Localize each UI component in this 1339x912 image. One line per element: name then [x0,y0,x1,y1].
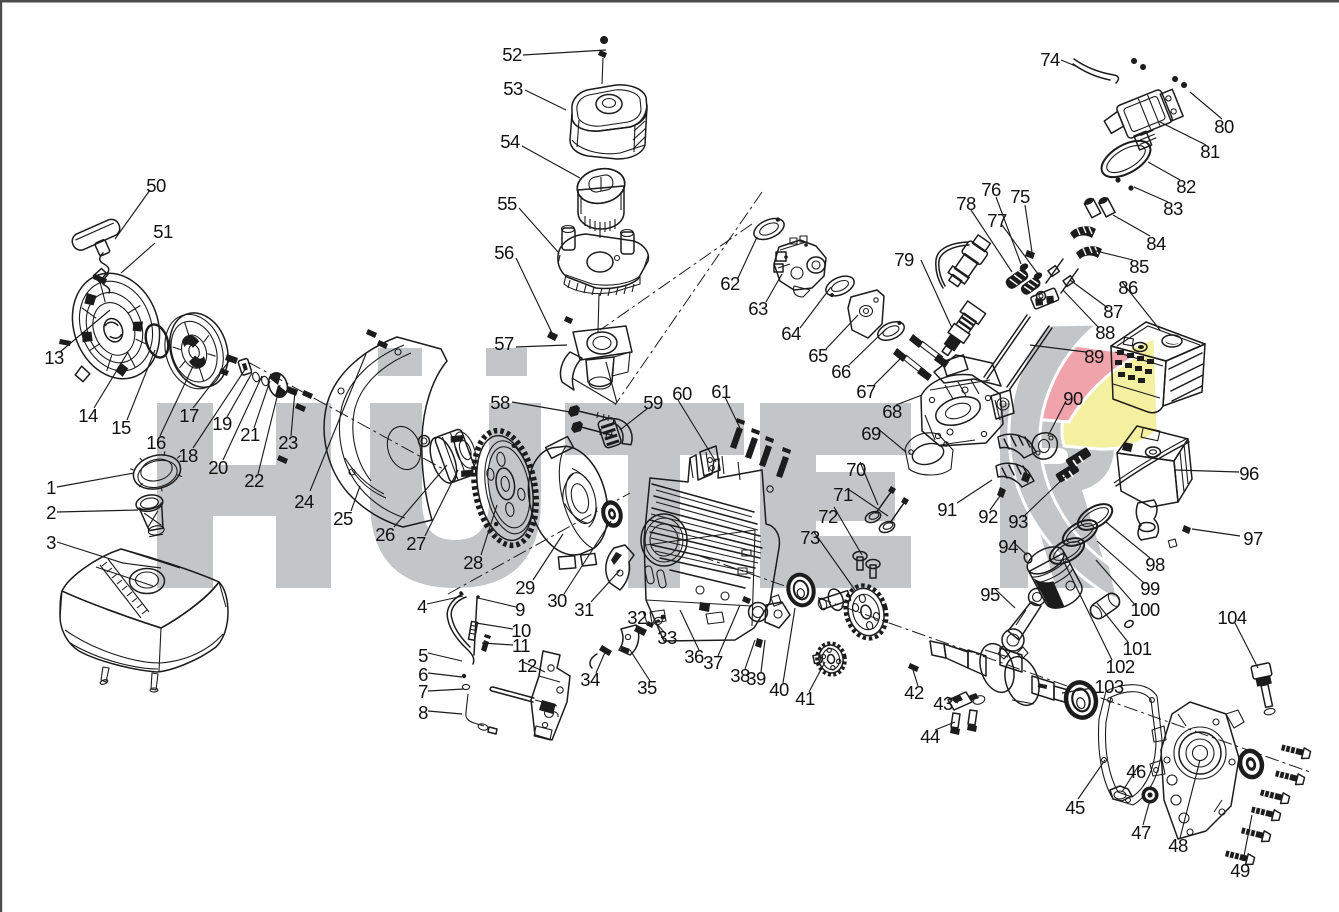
svg-text:12: 12 [517,655,537,676]
svg-text:74: 74 [1040,49,1060,70]
svg-text:88: 88 [1095,322,1115,343]
svg-text:16: 16 [146,432,166,453]
svg-text:100: 100 [1130,599,1159,620]
svg-text:95: 95 [980,584,1000,605]
svg-text:62: 62 [720,273,740,294]
svg-text:89: 89 [1084,346,1104,367]
svg-text:27: 27 [406,533,426,554]
svg-text:90: 90 [1063,388,1083,409]
svg-text:15: 15 [111,417,131,438]
svg-text:83: 83 [1163,198,1183,219]
svg-text:8: 8 [418,702,428,723]
svg-text:67: 67 [856,381,876,402]
svg-text:63: 63 [748,298,768,319]
svg-text:31: 31 [574,599,594,620]
svg-text:73: 73 [800,527,820,548]
svg-text:59: 59 [643,392,663,413]
svg-text:13: 13 [44,347,64,368]
svg-text:81: 81 [1200,141,1220,162]
svg-text:43: 43 [933,693,953,714]
svg-text:98: 98 [1145,554,1165,575]
svg-text:41: 41 [795,688,815,709]
svg-text:33: 33 [657,627,677,648]
svg-text:29: 29 [515,577,535,598]
svg-text:66: 66 [831,361,851,382]
svg-text:44: 44 [920,726,940,747]
svg-text:32: 32 [627,607,647,628]
svg-text:85: 85 [1129,256,1149,277]
svg-text:76: 76 [981,179,1001,200]
svg-text:84: 84 [1146,233,1166,254]
svg-text:51: 51 [153,221,173,242]
svg-text:2: 2 [46,502,56,523]
svg-text:24: 24 [294,491,314,512]
svg-text:1: 1 [46,477,56,498]
svg-text:60: 60 [672,383,692,404]
svg-text:3: 3 [46,532,56,553]
svg-text:75: 75 [1010,186,1030,207]
svg-text:87: 87 [1103,301,1123,322]
svg-text:102: 102 [1105,656,1134,677]
svg-text:7: 7 [418,681,428,702]
svg-text:56: 56 [494,242,514,263]
svg-text:36: 36 [684,646,704,667]
svg-text:57: 57 [494,333,514,354]
svg-text:92: 92 [978,506,998,527]
svg-text:86: 86 [1118,277,1138,298]
svg-text:94: 94 [998,536,1018,557]
svg-text:34: 34 [580,669,600,690]
svg-text:18: 18 [178,445,198,466]
svg-text:21: 21 [240,424,260,445]
svg-text:9: 9 [515,599,525,620]
svg-text:45: 45 [1065,797,1085,818]
svg-text:11: 11 [512,635,530,656]
svg-text:54: 54 [500,131,520,152]
svg-text:26: 26 [375,524,395,545]
svg-text:39: 39 [746,668,766,689]
svg-text:37: 37 [703,652,723,673]
svg-text:93: 93 [1008,511,1028,532]
svg-text:55: 55 [497,193,517,214]
svg-text:96: 96 [1239,463,1259,484]
svg-text:91: 91 [937,499,957,520]
svg-text:103: 103 [1094,676,1123,697]
svg-text:64: 64 [781,323,801,344]
svg-text:52: 52 [502,44,522,65]
svg-text:61: 61 [711,381,731,402]
svg-text:17: 17 [179,405,199,426]
svg-text:79: 79 [894,249,914,270]
svg-text:23: 23 [278,432,298,453]
svg-text:68: 68 [882,401,902,422]
svg-text:22: 22 [244,470,264,491]
svg-text:70: 70 [846,459,866,480]
svg-text:78: 78 [956,193,976,214]
svg-text:71: 71 [833,484,853,505]
svg-text:48: 48 [1168,835,1188,856]
svg-text:50: 50 [146,175,166,196]
svg-text:20: 20 [208,457,228,478]
svg-text:47: 47 [1131,822,1151,843]
svg-text:30: 30 [547,590,567,611]
svg-text:49: 49 [1230,860,1250,881]
svg-text:99: 99 [1140,578,1160,599]
svg-text:82: 82 [1176,176,1196,197]
svg-text:77: 77 [987,210,1007,231]
svg-text:19: 19 [212,413,232,434]
svg-text:53: 53 [503,78,523,99]
svg-text:104: 104 [1217,607,1246,628]
svg-text:4: 4 [417,596,427,617]
svg-text:58: 58 [490,392,510,413]
svg-text:42: 42 [904,682,924,703]
svg-text:69: 69 [861,423,881,444]
svg-text:5: 5 [418,645,428,666]
svg-text:72: 72 [818,506,838,527]
svg-text:80: 80 [1214,116,1234,137]
svg-text:65: 65 [808,345,828,366]
svg-text:97: 97 [1243,528,1263,549]
svg-text:25: 25 [333,508,353,529]
svg-text:46: 46 [1126,761,1146,782]
svg-text:40: 40 [769,679,789,700]
svg-text:35: 35 [637,677,657,698]
svg-text:28: 28 [463,552,483,573]
svg-text:14: 14 [78,405,98,426]
